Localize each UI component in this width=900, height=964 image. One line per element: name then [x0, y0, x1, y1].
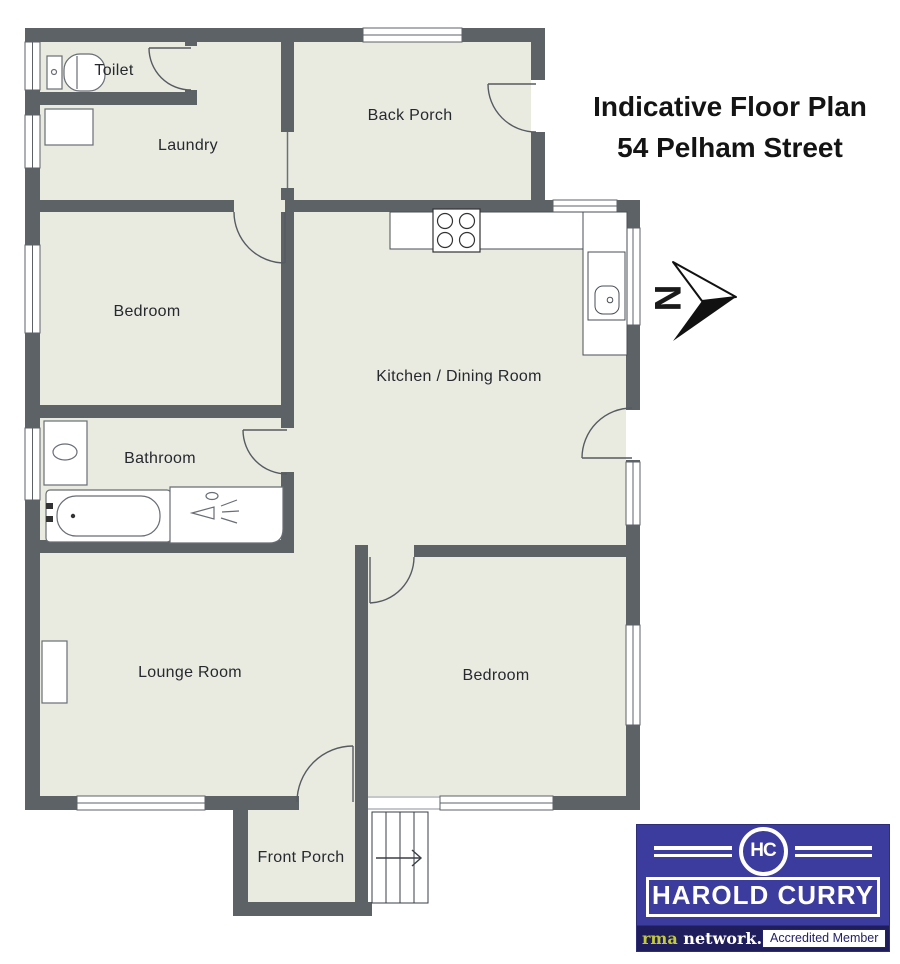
logo-rule-right: [795, 846, 873, 857]
plan-title-line2: 54 Pelham Street: [566, 127, 894, 168]
window-bedroom2-right: [626, 625, 640, 725]
logo-rule-left: [654, 846, 732, 857]
sink-drain: [607, 297, 613, 303]
compass-letter: N: [647, 285, 688, 312]
bath-tap: [46, 503, 53, 509]
plan-title-line1: Indicative Floor Plan: [566, 86, 894, 127]
window-bedroom1: [25, 245, 40, 333]
plan-title: Indicative Floor Plan 54 Pelham Street: [566, 86, 894, 168]
window-bedroom2-bottom: [440, 796, 553, 810]
harold-curry-logo: HC HAROLD CURRY rma network. Accredited …: [636, 824, 890, 952]
logo-main-panel: HC HAROLD CURRY: [636, 824, 890, 926]
room-label-kitchen: Kitchen / Dining Room: [376, 368, 542, 386]
burner: [460, 214, 475, 229]
floor-plan-page: N Toilet Laundry Back Porch Bedroom Kitc…: [0, 0, 900, 964]
room-label-laundry: Laundry: [158, 137, 218, 155]
wall-toilet-bottom: [25, 92, 192, 105]
burner: [438, 214, 453, 229]
window-bathroom: [25, 428, 40, 500]
wall-porch-left: [233, 810, 248, 916]
window-kitchen-right-1: [626, 228, 640, 325]
window-laundry: [25, 115, 40, 168]
bath-tap: [46, 516, 53, 522]
window-toilet: [25, 42, 40, 90]
vanity-basin: [53, 444, 77, 460]
window-backporch-top: [363, 28, 462, 42]
wall-porch-bottom: [233, 902, 372, 916]
burner: [460, 233, 475, 248]
window-kitchen-top: [553, 200, 617, 212]
room-label-lounge: Lounge Room: [138, 664, 242, 682]
laundry-trough: [45, 109, 93, 145]
entry-stairs: [372, 812, 428, 903]
logo-emblem-row: HC: [637, 828, 889, 874]
window-lounge-bottom: [77, 796, 205, 810]
room-label-toilet: Toilet: [94, 62, 133, 80]
room-label-back-porch: Back Porch: [368, 107, 453, 125]
burner: [438, 233, 453, 248]
room-label-bedroom-2: Bedroom: [462, 667, 529, 685]
window-kitchen-right-2: [626, 462, 640, 525]
toilet-button: [52, 70, 57, 75]
room-label-bedroom-1: Bedroom: [113, 303, 180, 321]
shower-rose: [206, 493, 218, 500]
wall-bedroom1-bathroom: [25, 405, 294, 418]
bath-drain: [71, 514, 75, 518]
logo-agency-name: HAROLD CURRY: [646, 877, 880, 917]
room-label-front-porch: Front Porch: [258, 849, 345, 867]
fireplace: [42, 641, 67, 703]
logo-monogram-badge: HC: [739, 827, 788, 876]
logo-network-bar: rma network. Accredited Member: [636, 926, 890, 952]
accredited-member-badge: Accredited Member: [762, 929, 886, 948]
wall-lounge-bedroom2: [355, 545, 368, 905]
kitchen-bench: [390, 212, 583, 249]
wall-mid-horizontal: [25, 200, 640, 212]
north-compass-icon: N: [647, 262, 736, 341]
shower: [170, 487, 283, 543]
room-label-bathroom: Bathroom: [124, 450, 196, 468]
rma-network-wordmark: rma network.: [642, 929, 762, 948]
